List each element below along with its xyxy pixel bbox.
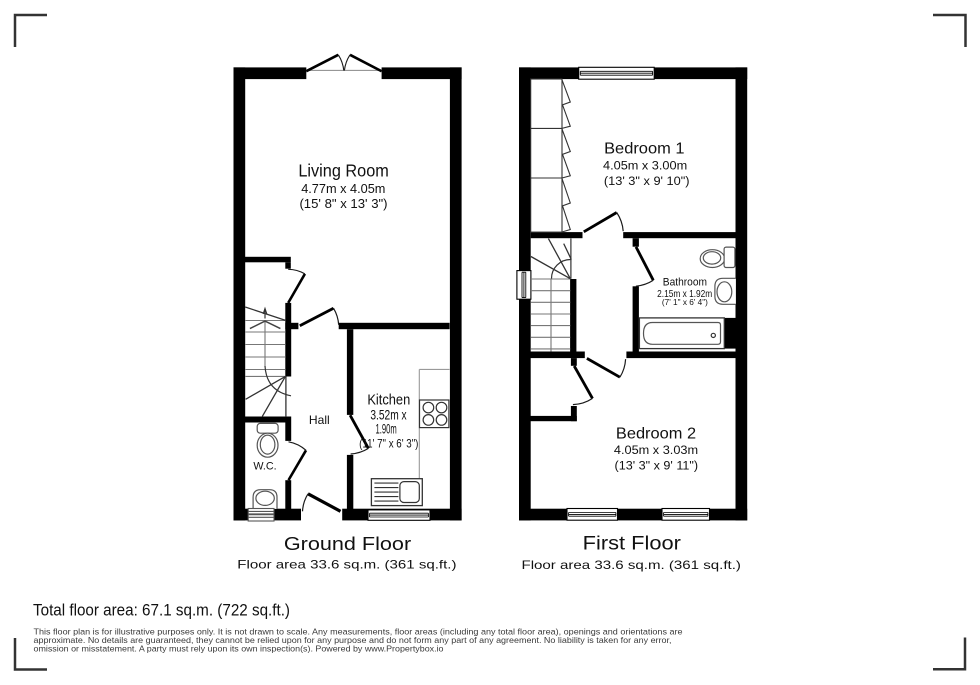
svg-text:4.77m x 4.05m: 4.77m x 4.05m xyxy=(301,181,385,196)
svg-text:(13' 3" x 9' 10"): (13' 3" x 9' 10") xyxy=(604,174,690,188)
svg-text:1.90m: 1.90m xyxy=(376,420,397,436)
svg-text:(15' 8" x 13' 3"): (15' 8" x 13' 3") xyxy=(299,196,387,211)
svg-text:First Floor: First Floor xyxy=(583,534,682,555)
svg-text:(11' 7" x 6' 3"): (11' 7" x 6' 3") xyxy=(359,437,418,451)
svg-text:Total floor area: 67.1 sq.m. (: Total floor area: 67.1 sq.m. (722 sq.ft.… xyxy=(33,602,290,620)
svg-text:Living Room: Living Room xyxy=(298,161,388,181)
svg-text:Bathroom: Bathroom xyxy=(663,277,707,289)
svg-text:Bedroom 2: Bedroom 2 xyxy=(616,426,696,443)
svg-text:Hall: Hall xyxy=(309,414,330,427)
svg-text:W.C.: W.C. xyxy=(253,460,276,472)
svg-text:(13' 3" x 9' 11"): (13' 3" x 9' 11") xyxy=(615,459,699,473)
svg-text:4.05m x 3.03m: 4.05m x 3.03m xyxy=(614,443,698,457)
svg-text:Floor area 33.6 sq.m. (361 sq.: Floor area 33.6 sq.m. (361 sq.ft.) xyxy=(237,557,456,571)
svg-text:Ground Floor: Ground Floor xyxy=(284,533,411,554)
svg-text:(7' 1" x 6' 4"): (7' 1" x 6' 4") xyxy=(662,298,708,307)
svg-text:4.05m x 3.00m: 4.05m x 3.00m xyxy=(603,159,687,173)
svg-text:Bedroom 1: Bedroom 1 xyxy=(604,141,685,158)
svg-text:Floor area 33.6 sq.m. (361 sq.: Floor area 33.6 sq.m. (361 sq.ft.) xyxy=(522,558,741,572)
svg-text:omission or misstatement. A pa: omission or misstatement. A party must r… xyxy=(34,644,444,654)
